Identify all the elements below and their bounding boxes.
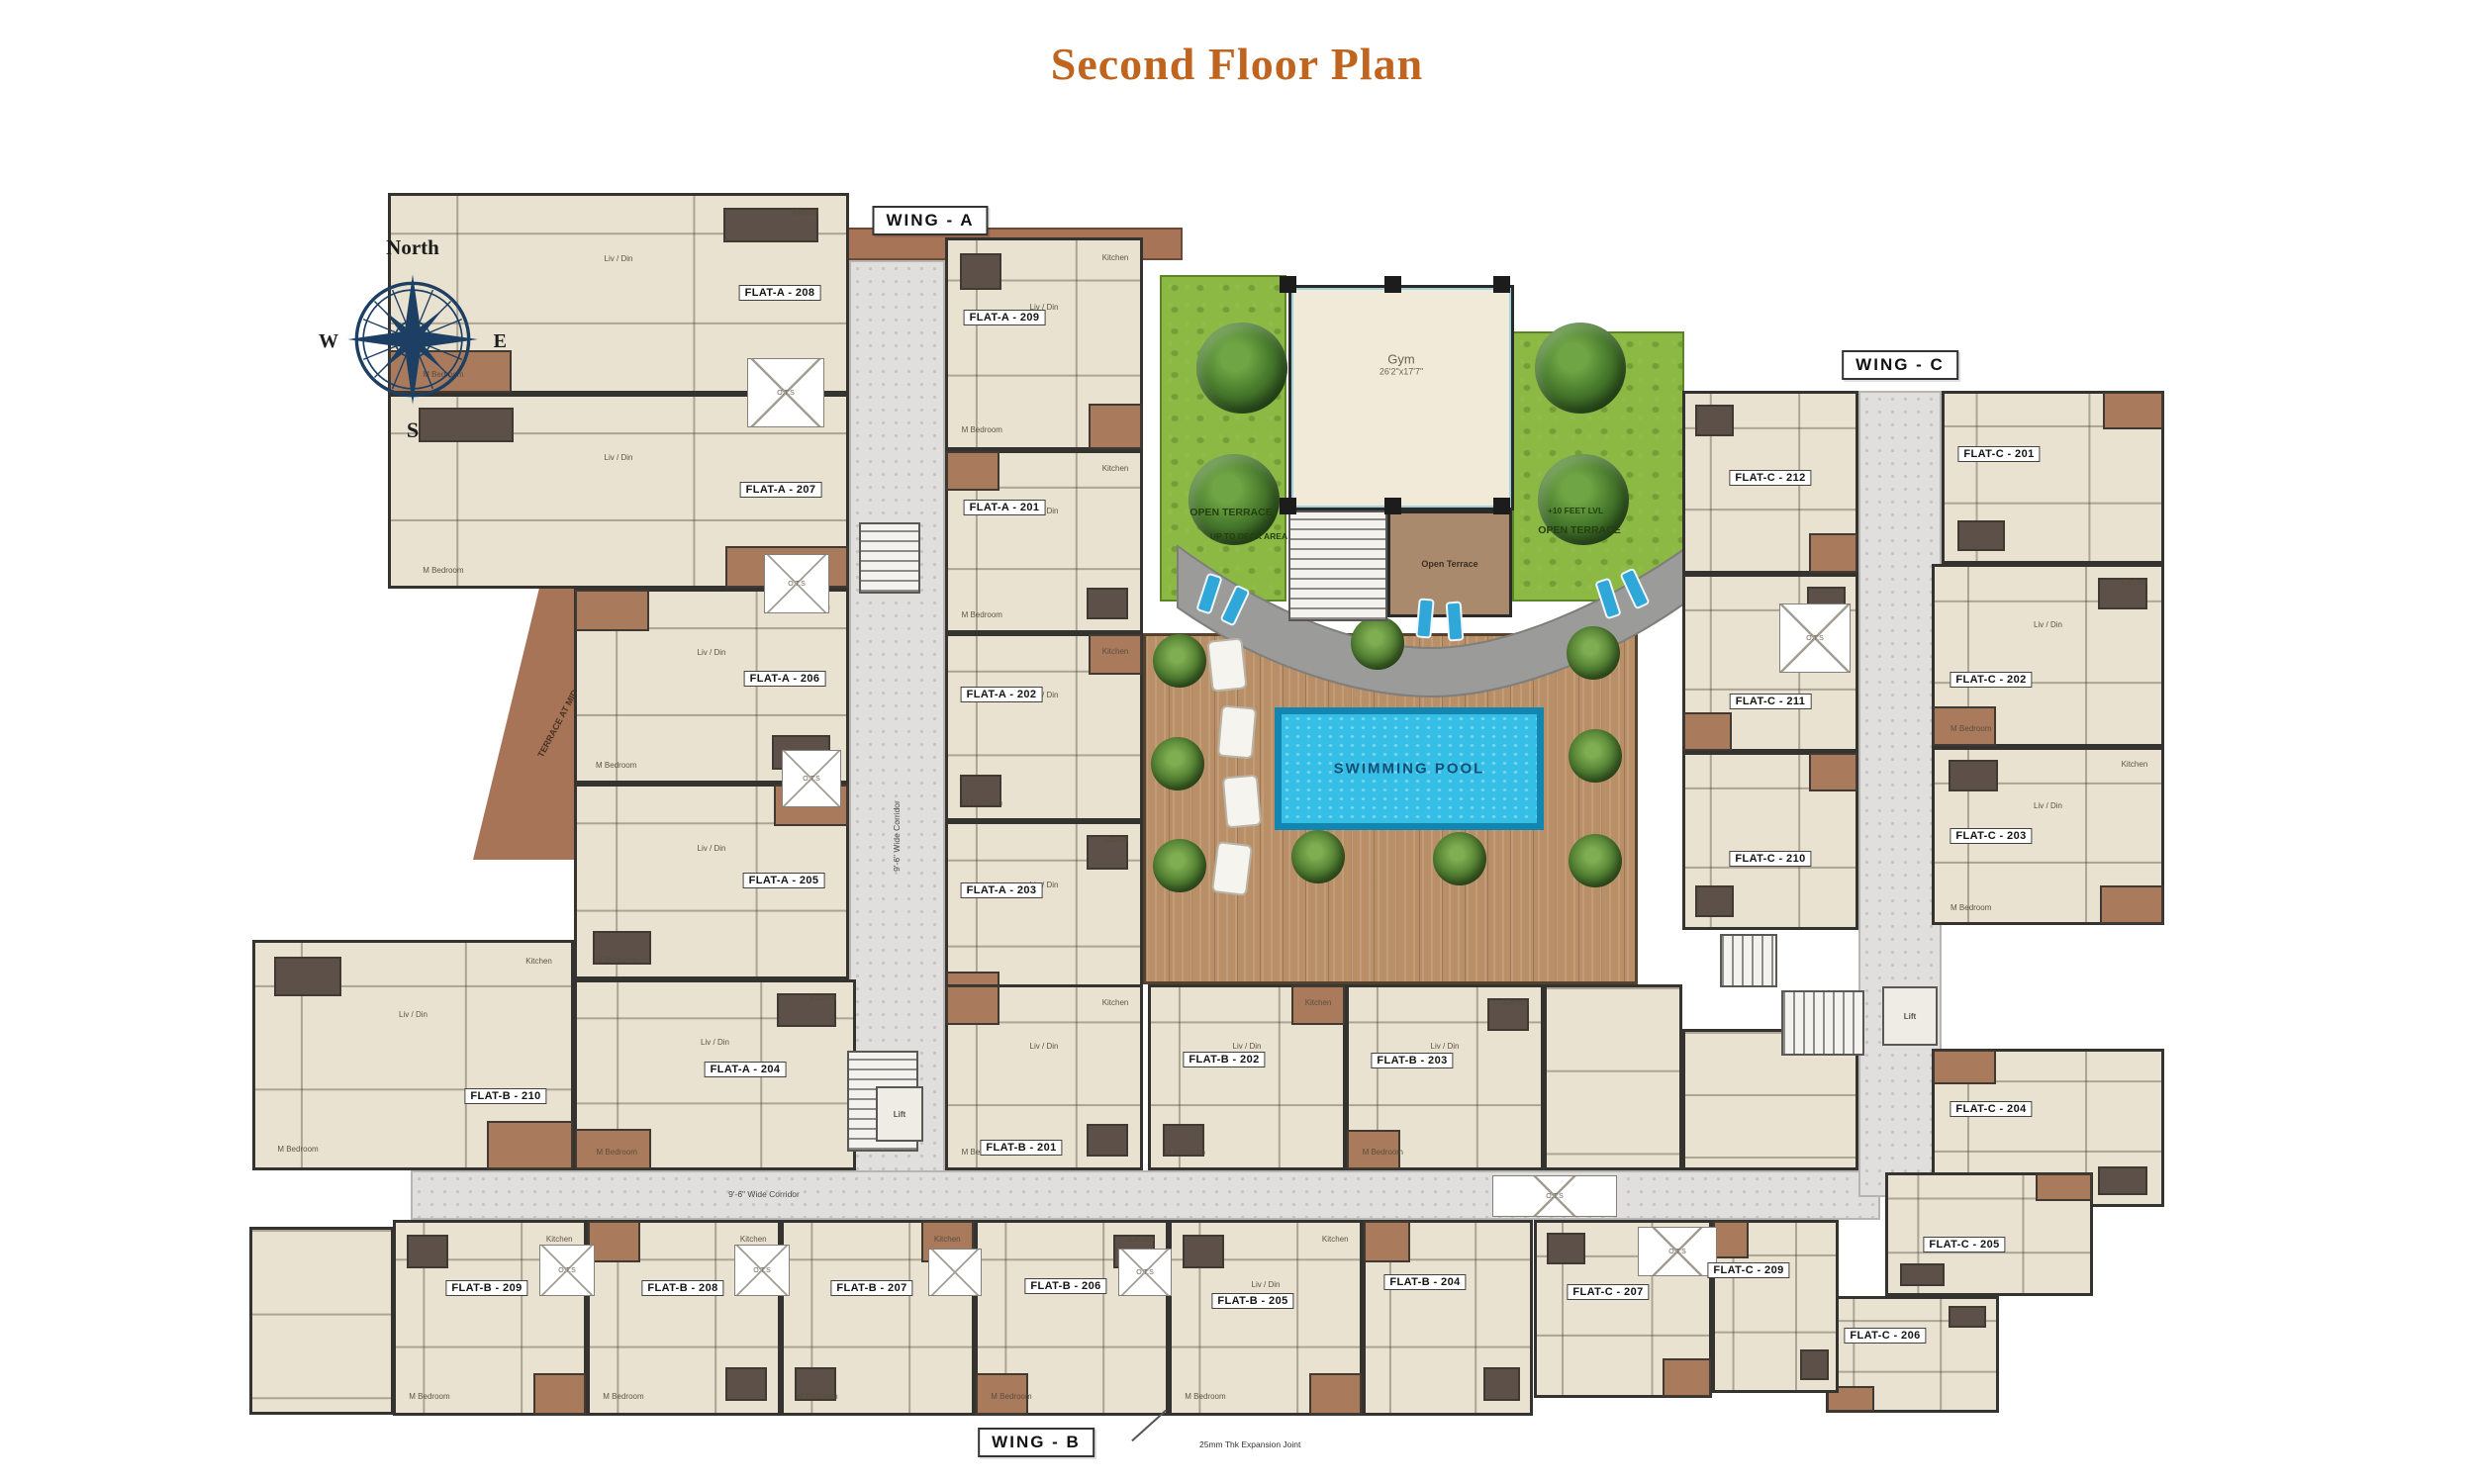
wing-b-label: WING - B: [978, 1428, 1094, 1457]
flat-number-label: FLAT-B - 204: [1383, 1274, 1466, 1290]
room-label-kitchen: Kitchen: [1102, 464, 1129, 473]
ots-shaft: O.T.S: [1118, 1249, 1172, 1296]
room-label-kitchen: Kitchen: [1102, 998, 1129, 1007]
flat-number-label: FLAT-C - 210: [1729, 851, 1811, 867]
compass-north-label: North: [386, 235, 439, 260]
room-label-master: M Bedroom: [962, 798, 1002, 807]
compass-east-label: E: [494, 330, 507, 353]
room-label-master: M Bedroom: [423, 566, 463, 575]
compass-rose: North W E S: [319, 235, 507, 443]
staircase: [1720, 934, 1777, 987]
ots-shaft: O.T.S: [539, 1245, 595, 1296]
flat-unit: Liv / DinM BedroomKitchen: [1932, 564, 2164, 747]
flat-number-label: FLAT-C - 205: [1923, 1237, 2005, 1252]
wing-a-label: WING - A: [872, 206, 988, 235]
compass-west-label: W: [319, 330, 338, 353]
flat-number-label: FLAT-C - 203: [1950, 828, 2032, 844]
room-label-kitchen: Kitchen: [1322, 1235, 1349, 1244]
column: [1280, 498, 1296, 514]
wing-c-label: WING - C: [1842, 350, 1958, 380]
room-label-master: M Bedroom: [597, 1148, 637, 1157]
room-label-kitchen: Kitchen: [2122, 578, 2148, 587]
ots-shaft: O.T.S: [747, 358, 824, 427]
shrub-icon: [1569, 729, 1622, 783]
staircase: [1288, 510, 1387, 621]
flat-unit: [1942, 391, 2164, 564]
swimming-pool-label: SWIMMING POOL: [1334, 761, 1485, 778]
shrub-icon: [1569, 834, 1622, 887]
flat-unit: Liv / DinM BedroomKitchen: [1346, 984, 1544, 1170]
flat-unit: Liv / DinM BedroomKitchen: [945, 237, 1143, 450]
flat-unit: Liv / DinM BedroomKitchen: [1148, 984, 1346, 1170]
compass-south-label: S: [407, 417, 419, 443]
room-label-master: M Bedroom: [1185, 1392, 1225, 1401]
flat-number-label: FLAT-B - 209: [445, 1280, 527, 1296]
room-label-living: Liv / Din: [698, 648, 726, 657]
tree-icon: [1196, 323, 1287, 414]
column: [1493, 498, 1510, 514]
flat-number-label: FLAT-C - 204: [1950, 1101, 2032, 1117]
flat-number-label: FLAT-A - 204: [705, 1062, 787, 1077]
flat-number-label: FLAT-C - 212: [1729, 470, 1811, 486]
shrub-icon: [1433, 832, 1486, 885]
room-label-living: Liv / Din: [701, 1038, 729, 1047]
shrub-icon: [1567, 626, 1620, 680]
corridor-width-label-b: 9'-6" Wide Corridor: [728, 1189, 800, 1199]
room-label-master: M Bedroom: [991, 1392, 1031, 1401]
deck-lounger: [1222, 775, 1262, 829]
flat-number-label: FLAT-B - 206: [1024, 1278, 1106, 1294]
flat-number-label: FLAT-A - 205: [743, 873, 825, 888]
flat-unit: [1885, 1172, 2093, 1296]
flat-number-label: FLAT-B - 210: [464, 1088, 546, 1104]
flat-number-label: FLAT-B - 207: [830, 1280, 912, 1296]
flat-number-label: FLAT-C - 211: [1730, 694, 1812, 709]
room-label-master: M Bedroom: [596, 761, 636, 770]
flat-number-label: FLAT-A - 209: [964, 310, 1046, 325]
room-label-kitchen: Kitchen: [934, 1235, 961, 1244]
corridor-width-label-a: 9'-6" Wide Corridor: [892, 800, 902, 872]
room-label-master: M Bedroom: [277, 1145, 318, 1154]
flat-number-label: FLAT-B - 201: [980, 1140, 1062, 1156]
up-to-deck-label: UP TO DECK AREA: [1210, 531, 1287, 541]
room-label-kitchen: Kitchen: [793, 208, 819, 217]
pool-lounger: [1446, 601, 1465, 641]
ten-feet-lvl-label: +10 FEET LVL: [1548, 506, 1603, 515]
floor-plan: Second Floor Plan North W E S: [0, 0, 2474, 1484]
flat-number-label: FLAT-C - 209: [1707, 1262, 1789, 1278]
gym-room: [1288, 285, 1514, 510]
tree-icon: [1535, 323, 1626, 414]
flat-number-label: FLAT-A - 203: [961, 882, 1043, 898]
room-label-master: M Bedroom: [1951, 903, 1991, 912]
room-label-master: M Bedroom: [596, 956, 636, 965]
room-label-living: Liv / Din: [1431, 1042, 1460, 1051]
room-label-living: Liv / Din: [698, 844, 726, 853]
room-label-kitchen: Kitchen: [1128, 1235, 1155, 1244]
expansion-joint-note: 25mm Thk Expansion Joint: [1199, 1439, 1300, 1449]
gym-label: Gym 26'2"x17'7": [1380, 352, 1423, 377]
room-label-kitchen: Kitchen: [810, 993, 837, 1002]
ots-shaft: O.T.S: [1779, 603, 1851, 673]
flat-unit: Liv / DinM BedroomKitchen: [945, 450, 1143, 633]
room-label-living: Liv / Din: [1030, 1042, 1059, 1051]
open-terrace-right-label: OPEN TERRACE: [1538, 524, 1620, 536]
ots-shaft: [928, 1249, 982, 1296]
wing-c-corridor: [1858, 391, 1942, 1197]
shrub-icon: [1153, 634, 1206, 688]
room-label-kitchen: Kitchen: [1102, 253, 1129, 262]
room-label-kitchen: Kitchen: [1305, 998, 1332, 1007]
flat-unit: [1712, 1220, 1839, 1393]
flat-unit: Liv / DinM BedroomKitchen: [1169, 1220, 1363, 1416]
room-label-living: Liv / Din: [399, 1010, 428, 1019]
open-terrace-left-label: OPEN TERRACE: [1189, 507, 1272, 518]
flat-number-label: FLAT-A - 202: [961, 687, 1043, 702]
room-label-living: Liv / Din: [1252, 1280, 1281, 1289]
room-label-living: Liv / Din: [2034, 620, 2062, 629]
column: [1493, 276, 1510, 293]
flat-unit: [1826, 1296, 1999, 1413]
room-label-kitchen: Kitchen: [740, 1235, 767, 1244]
room-label-living: Liv / Din: [605, 254, 633, 263]
lift: Lift: [1882, 986, 1938, 1046]
deck-lounger: [1211, 841, 1253, 896]
deck-lounger: [1206, 637, 1247, 692]
room-label-master: M Bedroom: [1165, 1148, 1205, 1157]
gym-name: Gym: [1387, 352, 1414, 367]
wing-b-corridor: [411, 1170, 1880, 1220]
flat-unit: [1363, 1220, 1533, 1416]
room-label-kitchen: Kitchen: [1102, 647, 1129, 656]
flat-unit: Liv / DinM BedroomKitchen: [945, 633, 1143, 821]
room-label-master: M Bedroom: [797, 1392, 837, 1401]
gym-dims: 26'2"x17'7": [1380, 367, 1423, 377]
room-label-kitchen: Kitchen: [546, 1235, 573, 1244]
flat-unit: [1682, 752, 1858, 930]
flat-number-label: FLAT-B - 208: [641, 1280, 723, 1296]
column: [1280, 276, 1296, 293]
shrub-icon: [1351, 616, 1404, 670]
compass-icon: [345, 272, 480, 407]
staircase: [1781, 990, 1864, 1056]
ots-shaft: O.T.S: [1492, 1175, 1617, 1217]
room-label-master: M Bedroom: [962, 610, 1002, 619]
flat-number-label: FLAT-B - 202: [1183, 1052, 1265, 1067]
room-label-master: M Bedroom: [1363, 1148, 1403, 1157]
room-label-kitchen: Kitchen: [1503, 998, 1530, 1007]
flat-block: [249, 1227, 394, 1415]
flat-number-label: FLAT-B - 203: [1371, 1053, 1453, 1068]
flat-number-label: FLAT-A - 206: [744, 671, 826, 687]
room-label-kitchen: Kitchen: [525, 957, 552, 966]
room-label-living: Liv / Din: [2034, 801, 2062, 810]
ots-shaft: O.T.S: [764, 554, 829, 613]
shrub-icon: [1151, 737, 1204, 790]
ots-shaft: O.T.S: [1638, 1227, 1717, 1276]
open-terrace-room-label: Open Terrace: [1421, 559, 1477, 569]
lift: Lift: [876, 1086, 923, 1142]
room-label-master: M Bedroom: [1951, 724, 1991, 733]
flat-number-label: FLAT-A - 201: [964, 500, 1046, 515]
flat-number-label: FLAT-C - 201: [1957, 446, 2040, 462]
flat-number-label: FLAT-A - 207: [740, 482, 822, 498]
shrub-icon: [1153, 839, 1206, 892]
deck-lounger: [1217, 705, 1257, 760]
ots-shaft: O.T.S: [734, 1245, 790, 1296]
flat-number-label: FLAT-A - 208: [739, 285, 821, 301]
room-label-living: Liv / Din: [1233, 1042, 1262, 1051]
ots-shaft: O.T.S: [782, 750, 841, 807]
flat-number-label: FLAT-C - 206: [1844, 1328, 1926, 1344]
shrub-icon: [1291, 830, 1345, 883]
staircase: [859, 522, 920, 594]
flat-number-label: FLAT-B - 205: [1211, 1293, 1293, 1309]
flat-block: [1544, 984, 1682, 1170]
room-label-master: M Bedroom: [603, 1392, 643, 1401]
column: [1384, 498, 1401, 514]
page-title: Second Floor Plan: [0, 38, 2474, 90]
flat-number-label: FLAT-C - 207: [1567, 1284, 1649, 1300]
room-label-master: M Bedroom: [962, 425, 1002, 434]
flat-number-label: FLAT-C - 202: [1950, 672, 2032, 688]
room-label-kitchen: Kitchen: [2122, 760, 2148, 769]
open-terrace-left: [1160, 275, 1286, 602]
room-label-kitchen: Kitchen: [1102, 835, 1129, 844]
room-label-master: M Bedroom: [409, 1392, 449, 1401]
flat-unit: Liv / DinM BedroomKitchen: [252, 940, 574, 1170]
column: [1384, 276, 1401, 293]
room-label-living: Liv / Din: [605, 453, 633, 462]
